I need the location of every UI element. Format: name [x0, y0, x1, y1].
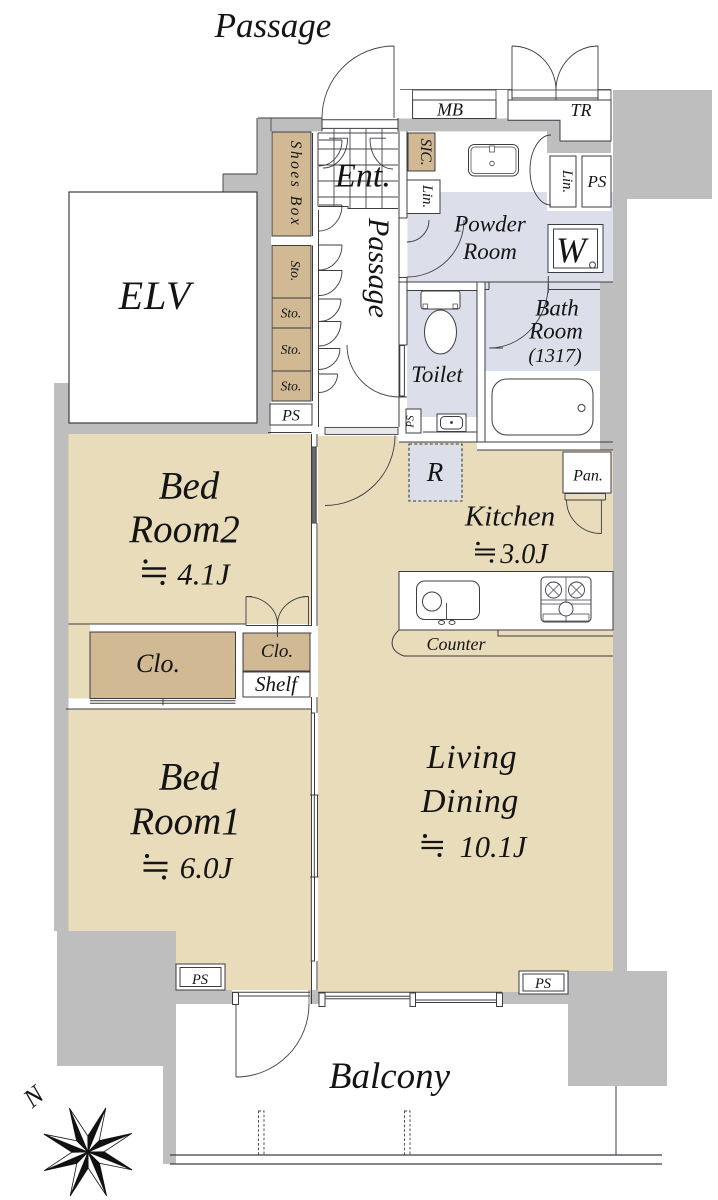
svg-text:(1317): (1317) — [528, 345, 582, 367]
svg-text:Bed: Bed — [159, 465, 220, 508]
svg-text:SIC.: SIC. — [417, 138, 434, 165]
svg-text:R: R — [426, 457, 444, 487]
svg-text:PS: PS — [405, 415, 417, 429]
svg-text:Passage: Passage — [214, 6, 332, 45]
svg-text:PS: PS — [281, 408, 300, 425]
svg-text:Sto.: Sto. — [281, 306, 302, 321]
svg-text:Clo.: Clo. — [261, 641, 293, 662]
svg-text:Room: Room — [462, 239, 517, 264]
svg-text:Pan.: Pan. — [572, 468, 603, 485]
svg-text:TR: TR — [570, 100, 591, 120]
svg-text:W: W — [556, 230, 589, 270]
svg-text:Balcony: Balcony — [329, 1056, 451, 1097]
svg-text:Dining: Dining — [420, 783, 519, 820]
svg-text:PS: PS — [587, 172, 607, 191]
svg-text:4.1J: 4.1J — [177, 557, 231, 592]
svg-text:10.1J: 10.1J — [460, 830, 528, 864]
svg-text:PS: PS — [191, 972, 209, 988]
svg-text:Sto.: Sto. — [288, 261, 303, 282]
svg-text:Sto.: Sto. — [281, 342, 302, 357]
svg-text:3.0J: 3.0J — [499, 539, 549, 570]
svg-text:Ent.: Ent. — [334, 158, 391, 195]
svg-text:Counter: Counter — [426, 634, 486, 654]
svg-text:MB: MB — [436, 100, 463, 120]
svg-text:Sto.: Sto. — [281, 379, 302, 394]
svg-text:6.0J: 6.0J — [180, 850, 234, 885]
svg-text:Toilet: Toilet — [411, 362, 463, 387]
svg-text:Room2: Room2 — [128, 508, 240, 551]
svg-text:Powder: Powder — [453, 212, 527, 237]
svg-text:Passage: Passage — [362, 217, 395, 318]
svg-text:Bath: Bath — [535, 296, 578, 321]
svg-text:Lin.: Lin. — [559, 169, 575, 193]
svg-text:ELV: ELV — [118, 273, 195, 318]
svg-text:Room1: Room1 — [129, 800, 241, 843]
svg-text:Clo.: Clo. — [136, 649, 180, 678]
svg-text:Living: Living — [426, 739, 518, 776]
svg-text:Lin.: Lin. — [419, 184, 435, 208]
svg-text:Bed: Bed — [159, 756, 220, 799]
svg-text:PS: PS — [534, 976, 552, 992]
svg-text:Shelf: Shelf — [255, 672, 300, 696]
svg-text:Room: Room — [528, 319, 583, 344]
svg-text:Kitchen: Kitchen — [464, 501, 555, 533]
svg-text:Shoes Box: Shoes Box — [287, 141, 304, 228]
